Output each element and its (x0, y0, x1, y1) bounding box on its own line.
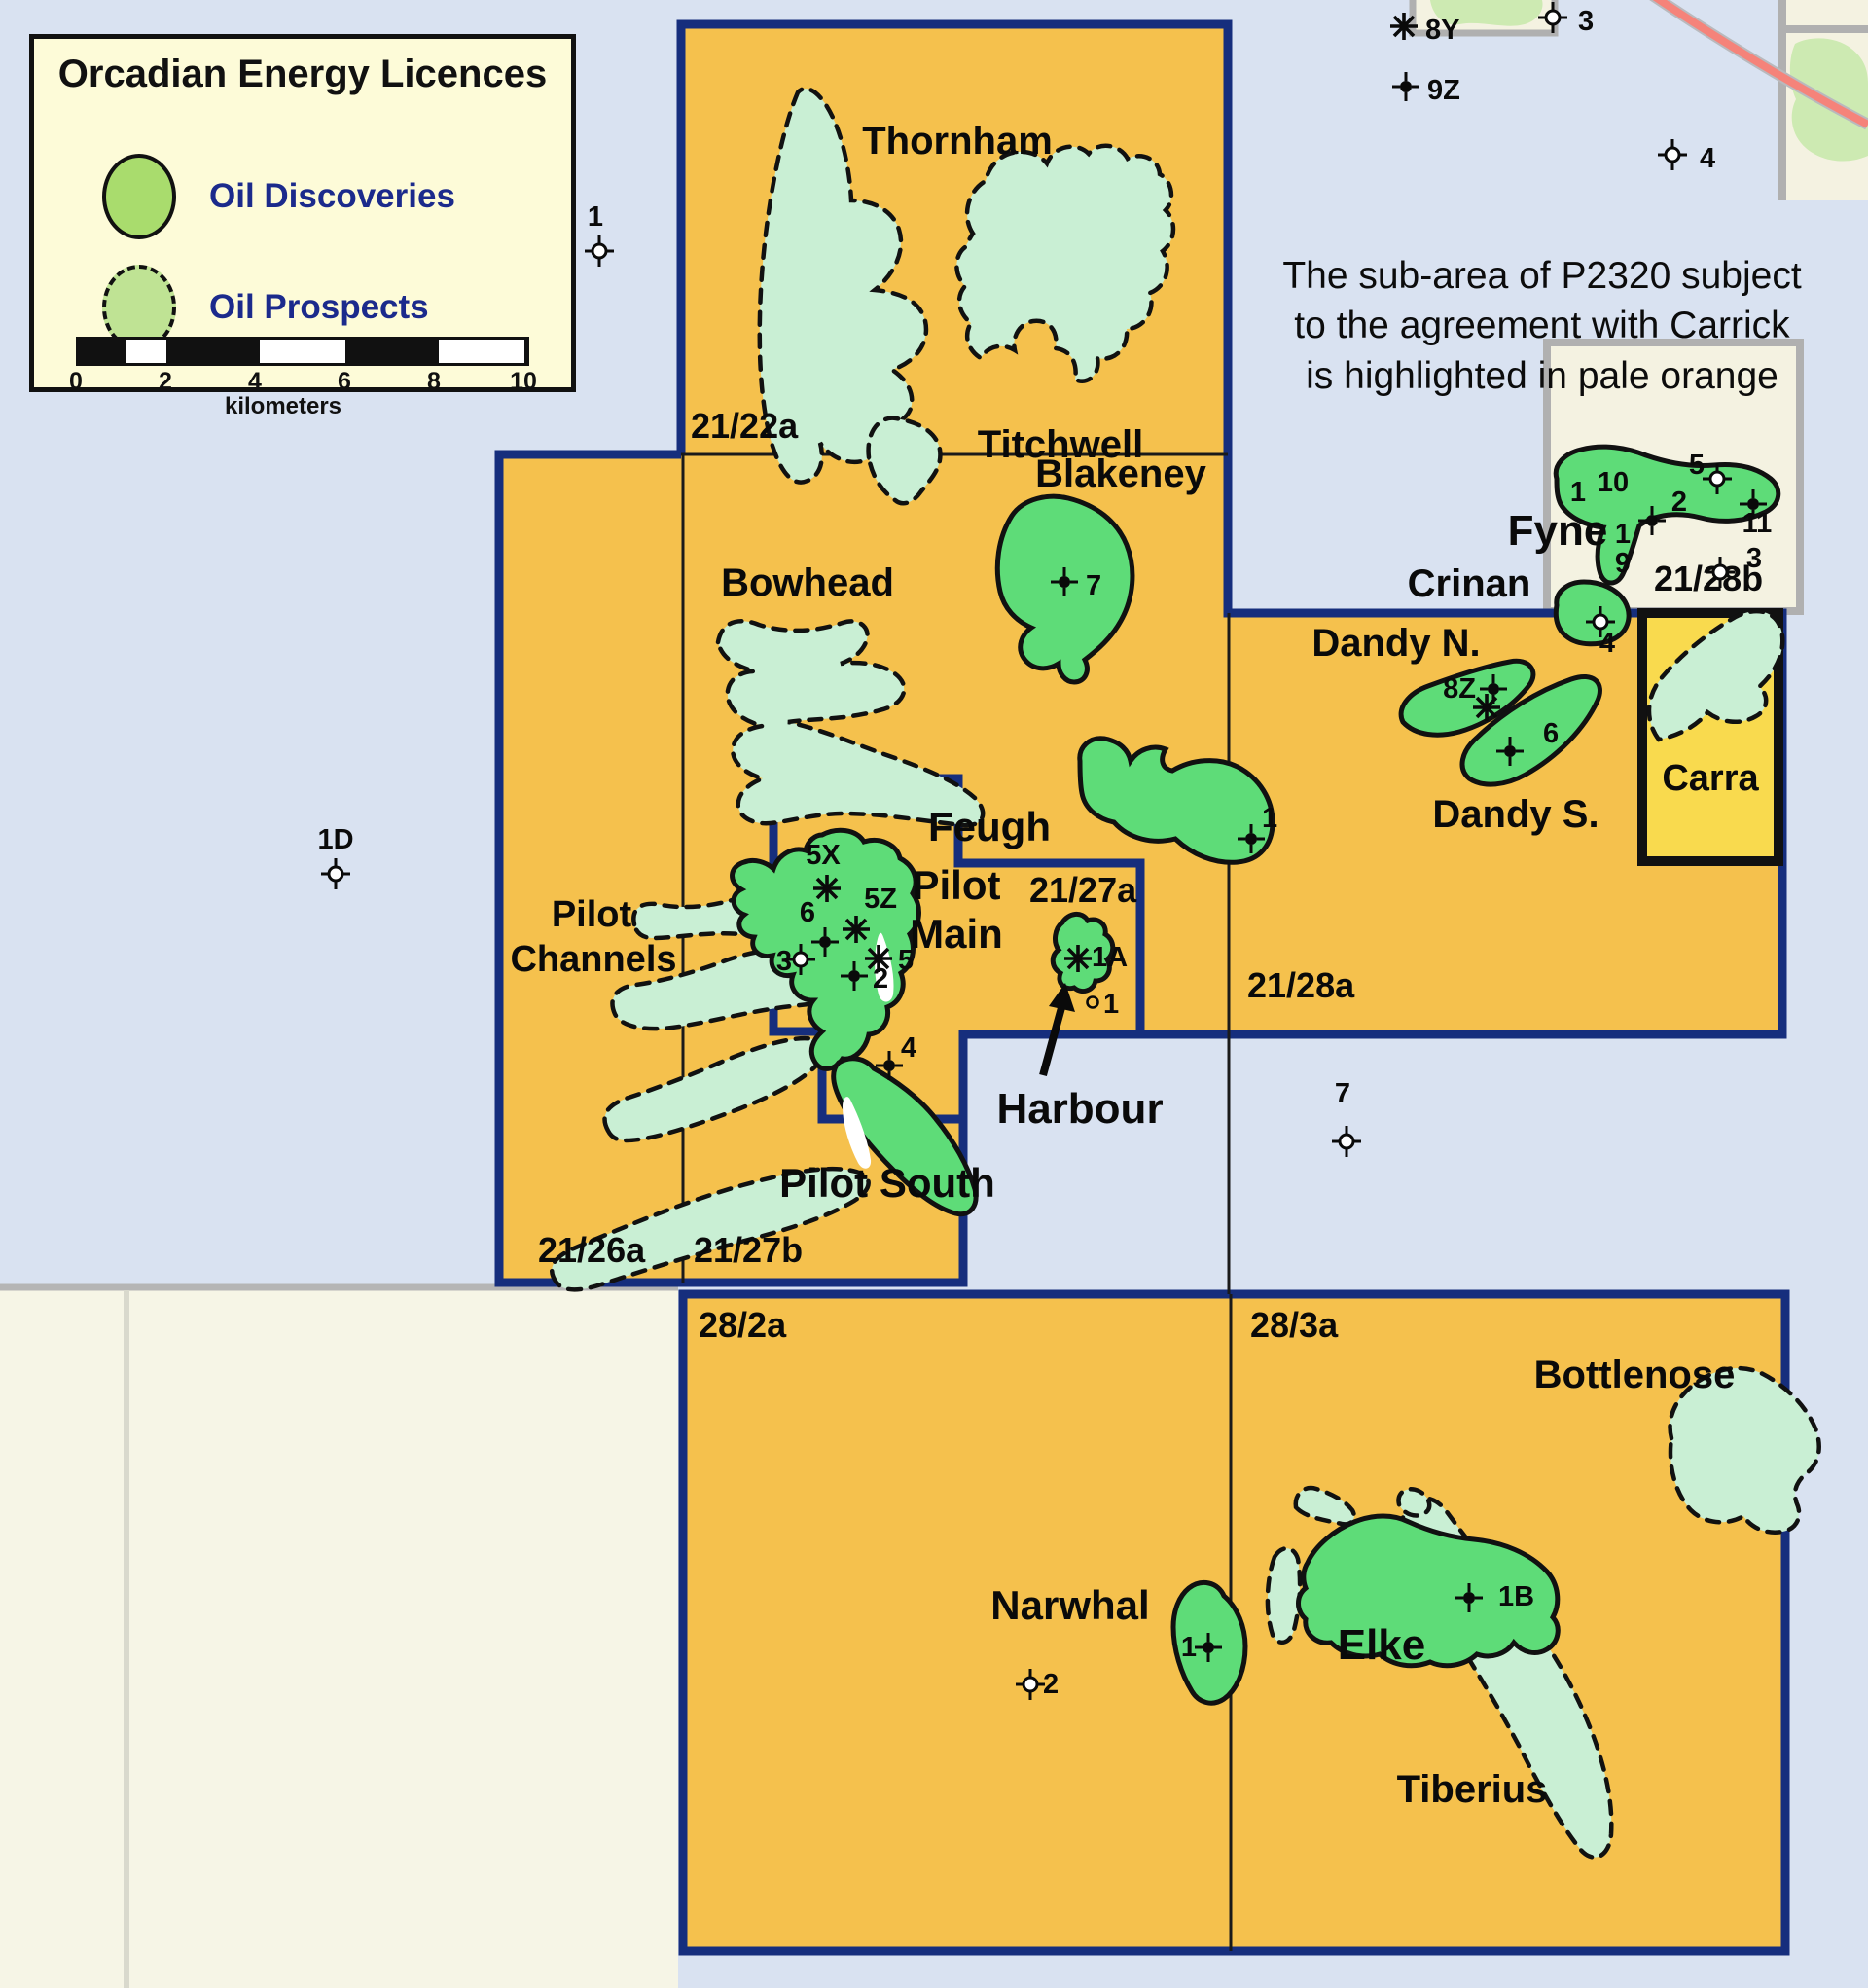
well-label: 1 (1262, 803, 1277, 834)
scale-bar (76, 337, 529, 366)
well-marker-9: 9 (1615, 548, 1631, 579)
well-marker-1: 1 (1615, 519, 1631, 550)
block-label: 21/27a (1029, 870, 1137, 910)
well-label: 4 (901, 1032, 916, 1064)
legend-item-label: Oil Discoveries (209, 177, 455, 216)
field-label: Crinan (1408, 562, 1531, 605)
field-label: Pilot (913, 862, 1001, 908)
well-label: 4 (1700, 143, 1715, 174)
map-stage: ThornhamTitchwellBlakeneyBowheadFeughFyn… (0, 0, 1868, 1988)
field-label: Dandy N. (1311, 622, 1480, 665)
scale-tick: 4 (248, 368, 262, 396)
well-label: 5X (806, 840, 841, 871)
scale-tick: 0 (69, 368, 83, 396)
well-label: 3 (776, 946, 792, 977)
well-label: 5 (898, 945, 914, 976)
map-annotation: The sub-area of P2320 subject to the agr… (1231, 251, 1853, 401)
annotation-line: to the agreement with Carrick (1231, 301, 1853, 350)
legend-panel: Orcadian Energy Licences Oil Discoveries… (29, 34, 576, 392)
field-label: Harbour (996, 1085, 1163, 1133)
well-label: 2 (1671, 487, 1687, 518)
field-label: Pilot (552, 894, 632, 935)
field-label: Dandy S. (1432, 793, 1599, 836)
well-symbol-star (843, 916, 870, 943)
well-label: 7 (1335, 1078, 1350, 1109)
legend-item-discoveries: Oil Discoveries (34, 154, 571, 247)
well-label: 8Z (1443, 673, 1476, 705)
scale-tick: 8 (427, 368, 441, 396)
field-label: Bowhead (721, 561, 894, 604)
well-label: 3 (1578, 6, 1594, 37)
well-symbol-star (1390, 13, 1418, 40)
discovery-crinan (1556, 582, 1629, 644)
annotation-line: is highlighted in pale orange (1231, 351, 1853, 401)
well-marker-2: 2 (1671, 487, 1687, 518)
scale-unit-label: kilometers (34, 393, 532, 420)
block-label: 28/2a (699, 1305, 787, 1345)
well-marker-10: 10 (1598, 467, 1629, 498)
block-label: 21/22a (691, 406, 799, 446)
well-label: 1 (588, 201, 603, 233)
well-label: 6 (800, 897, 815, 928)
well-label: 9 (1615, 548, 1631, 579)
well-label: 7 (1086, 570, 1101, 601)
well-label: 1 (1570, 477, 1586, 508)
well-label: 1 (1181, 1632, 1197, 1663)
field-label: Narwhal (990, 1582, 1149, 1628)
well-label: 1 (1103, 989, 1119, 1020)
bottom-left-land (0, 1287, 678, 1988)
field-label: Feugh (928, 804, 1051, 849)
well-label: 9Z (1427, 75, 1460, 106)
field-label: Thornham (862, 120, 1053, 163)
well-label: 10 (1598, 467, 1629, 498)
field-label: Channels (510, 939, 676, 980)
prospect-elke-west (1268, 1548, 1300, 1643)
well-symbol-star (813, 875, 841, 902)
block-label: 28/3a (1250, 1305, 1339, 1345)
field-label: Bottlenose (1534, 1354, 1736, 1396)
well-label: 1D (317, 824, 353, 855)
well-label: 8Y (1425, 15, 1459, 46)
block-label: 21/26a (538, 1230, 646, 1270)
well-label: 3 (1746, 543, 1762, 574)
well-label: 1A (1092, 942, 1128, 973)
field-label: Pilot South (779, 1160, 995, 1206)
field-label: Carra (1662, 758, 1759, 799)
well-marker-1: 1 (1570, 477, 1586, 508)
block-label: 21/28a (1247, 965, 1355, 1005)
scale-tick: 2 (159, 368, 172, 396)
field-label: Elke (1338, 1621, 1426, 1669)
field-label: Main (910, 911, 1003, 957)
well-label: 6 (1543, 718, 1559, 749)
block-label: 21/27b (694, 1230, 803, 1270)
well-symbol-star (1064, 945, 1092, 972)
well-label: 4 (1599, 628, 1615, 659)
scale-tick: 6 (338, 368, 351, 396)
legend-title: Orcadian Energy Licences (34, 53, 571, 96)
legend-item-label: Oil Prospects (209, 288, 429, 327)
well-label: 5Z (864, 884, 897, 915)
field-label: Tiberius (1397, 1768, 1548, 1811)
oil-discovery-symbol (102, 154, 176, 239)
well-label: 5 (1689, 450, 1705, 481)
field-label: Blakeney (1035, 452, 1206, 495)
well-symbol-star (1473, 694, 1500, 721)
well-label: 2 (873, 963, 888, 994)
well-label: 2 (1043, 1669, 1059, 1700)
well-label: 11 (1742, 508, 1773, 539)
well-label: 1 (1615, 519, 1631, 550)
annotation-line: The sub-area of P2320 subject (1231, 251, 1853, 301)
field-label: Fyne (1508, 507, 1608, 555)
scale-tick: 10 (510, 368, 537, 396)
scale-ticks: 0 2 4 6 8 10 (34, 368, 571, 393)
harbour-sea-cutout (963, 1034, 1228, 1284)
well-label: 1B (1498, 1581, 1534, 1612)
